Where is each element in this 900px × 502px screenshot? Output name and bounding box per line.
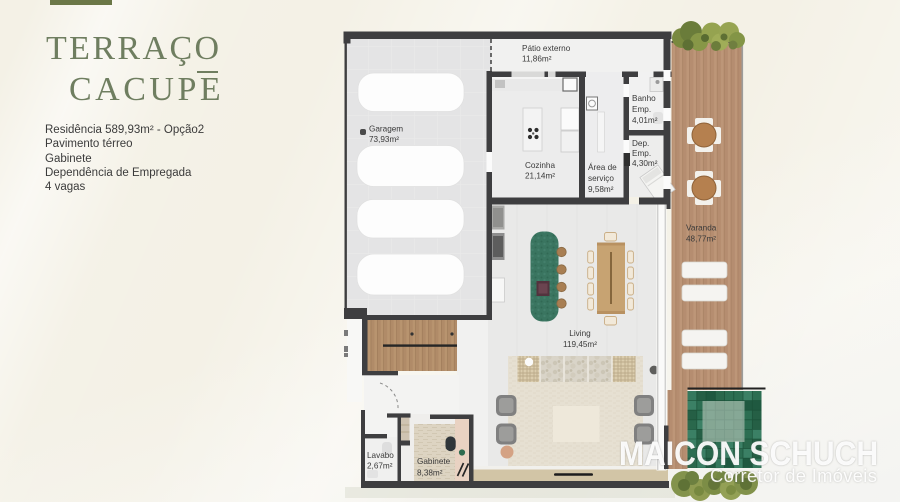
svg-text:serviço: serviço	[588, 174, 614, 183]
svg-text:8,38m²: 8,38m²	[417, 469, 443, 478]
svg-text:21,14m²: 21,14m²	[525, 172, 555, 181]
svg-text:Cozinha: Cozinha	[525, 161, 555, 170]
svg-text:11,86m²: 11,86m²	[522, 55, 552, 64]
svg-text:4,01m²: 4,01m²	[632, 116, 658, 125]
svg-text:Lavabo: Lavabo	[367, 451, 394, 460]
svg-text:2,67m²: 2,67m²	[367, 462, 393, 471]
svg-text:Varanda: Varanda	[686, 224, 717, 233]
svg-text:Emp.: Emp.	[632, 105, 651, 114]
svg-text:Gabinete: Gabinete	[417, 457, 451, 466]
svg-text:73,93m²: 73,93m²	[369, 135, 399, 144]
svg-text:4,30m²: 4,30m²	[632, 159, 658, 168]
svg-text:9,58m²: 9,58m²	[588, 185, 614, 194]
svg-text:Living: Living	[569, 329, 591, 338]
svg-text:Pátio externo: Pátio externo	[522, 44, 571, 53]
svg-text:Emp.: Emp.	[632, 149, 651, 158]
svg-text:Dep.: Dep.	[632, 139, 649, 148]
svg-text:119,45m²: 119,45m²	[563, 340, 597, 349]
svg-text:48,77m²: 48,77m²	[686, 235, 716, 244]
svg-text:Garagem: Garagem	[369, 125, 403, 134]
svg-text:Área de: Área de	[588, 162, 617, 172]
svg-text:Banho: Banho	[632, 94, 656, 103]
